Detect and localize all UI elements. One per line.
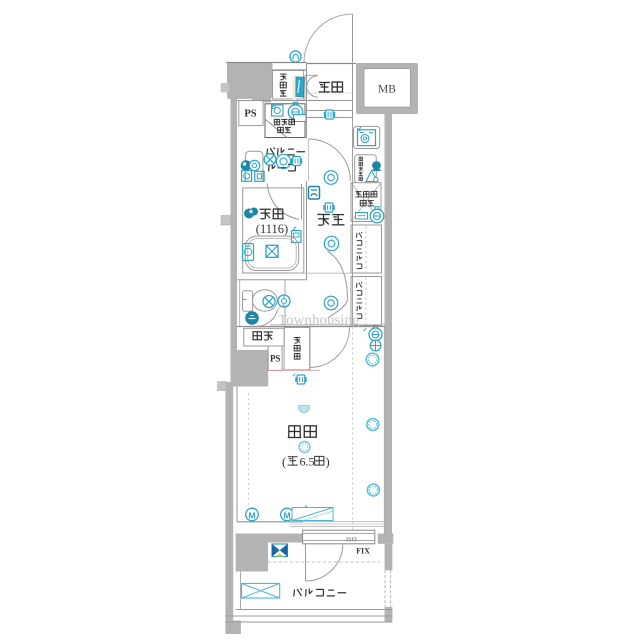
svg-text:M: M xyxy=(283,510,290,520)
svg-text:(: ( xyxy=(282,455,286,469)
svg-text:PS: PS xyxy=(270,354,281,364)
svg-text:PS: PS xyxy=(244,109,256,120)
svg-text:M: M xyxy=(248,510,255,520)
svg-text:): ) xyxy=(326,455,330,469)
svg-text:MB: MB xyxy=(378,84,396,96)
svg-text:6.5: 6.5 xyxy=(300,455,315,469)
svg-text:Townhousing: Townhousing xyxy=(278,313,360,329)
svg-text:(1116): (1116) xyxy=(256,222,288,236)
svg-text:FIX: FIX xyxy=(356,547,370,556)
